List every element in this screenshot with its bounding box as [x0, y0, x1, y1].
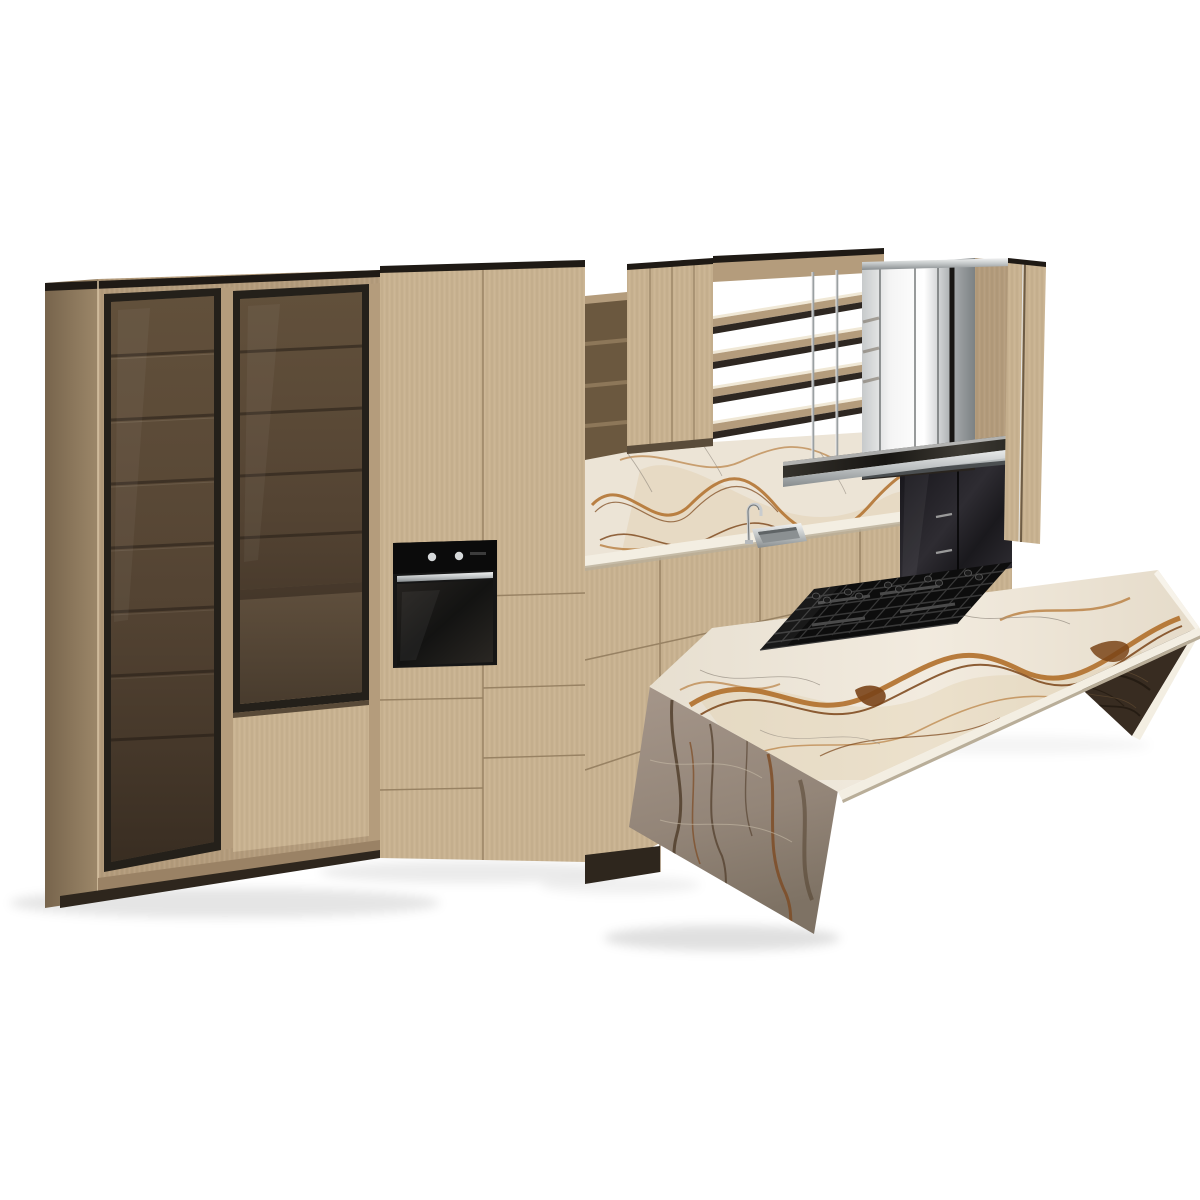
left-glass-cabinet	[45, 270, 380, 908]
oven-control-panel	[393, 540, 497, 574]
open-cubby-shelf	[585, 292, 627, 460]
lower-wood-door	[233, 700, 369, 852]
built-in-oven	[393, 540, 497, 668]
plank-wall-cabinet	[627, 258, 713, 454]
tall-oven-cabinet	[380, 260, 585, 862]
cabinet-side-panel	[45, 279, 98, 908]
oven-knob	[455, 552, 463, 560]
right-wood-panel	[1004, 258, 1046, 544]
glass-door-right	[233, 284, 369, 713]
oven-display	[470, 552, 486, 555]
oven-knob	[428, 553, 436, 561]
kitchen-render	[0, 0, 1200, 1200]
render-canvas	[0, 0, 1200, 1200]
glass-door-left	[104, 288, 221, 872]
